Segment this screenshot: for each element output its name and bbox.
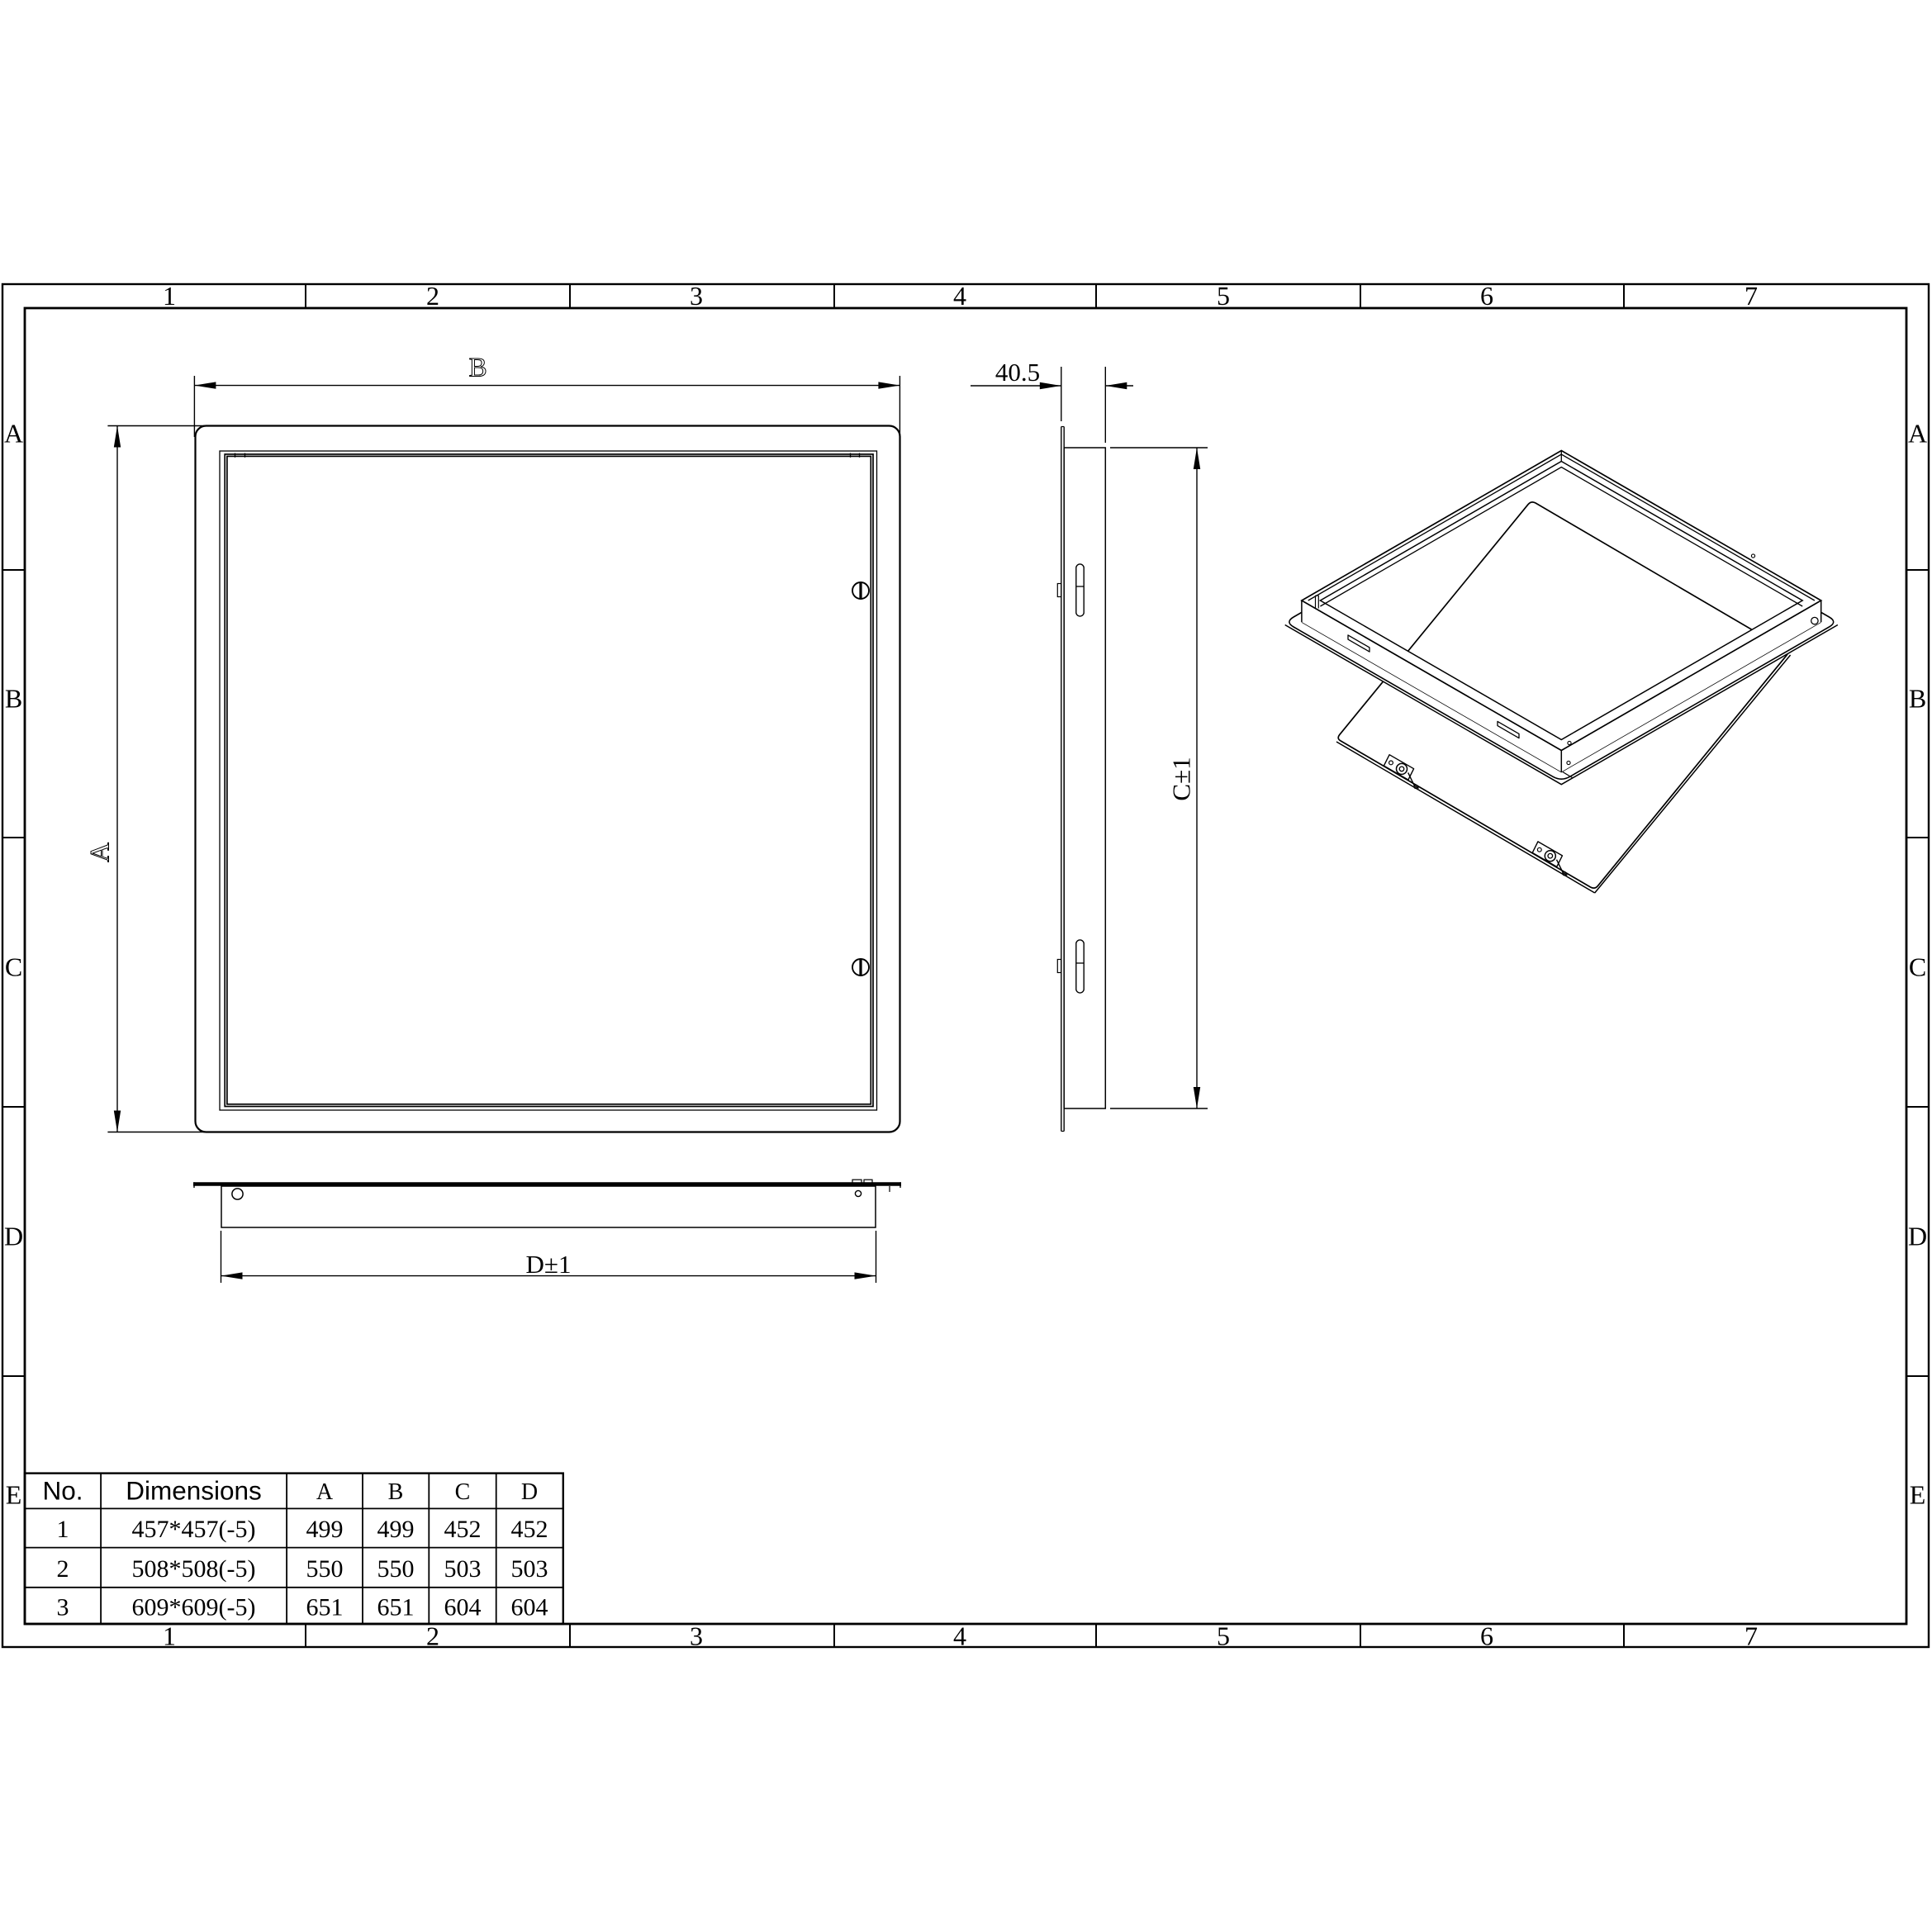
svg-text:No.: No. xyxy=(42,1476,83,1506)
svg-text:503: 503 xyxy=(444,1555,482,1583)
svg-text:609*609(-5): 609*609(-5) xyxy=(132,1594,256,1621)
svg-text:452: 452 xyxy=(511,1516,548,1543)
svg-text:40.5: 40.5 xyxy=(995,358,1040,387)
svg-text:550: 550 xyxy=(377,1555,415,1583)
svg-text:3: 3 xyxy=(57,1594,69,1621)
svg-text:1: 1 xyxy=(163,281,176,311)
svg-text:499: 499 xyxy=(306,1516,344,1543)
svg-text:D: D xyxy=(4,1222,23,1251)
svg-text:452: 452 xyxy=(444,1516,482,1543)
svg-text:651: 651 xyxy=(377,1594,415,1621)
svg-text:B: B xyxy=(469,354,487,383)
svg-text:5: 5 xyxy=(1217,281,1230,311)
svg-text:5: 5 xyxy=(1217,1621,1230,1651)
svg-text:B: B xyxy=(5,684,22,714)
svg-text:E: E xyxy=(1910,1480,1926,1510)
svg-text:2: 2 xyxy=(57,1555,69,1583)
svg-text:508*508(-5): 508*508(-5) xyxy=(132,1555,256,1583)
svg-text:E: E xyxy=(6,1480,22,1510)
svg-text:D±1: D±1 xyxy=(526,1250,572,1279)
svg-text:503: 503 xyxy=(511,1555,548,1583)
svg-text:7: 7 xyxy=(1744,281,1758,311)
svg-text:D: D xyxy=(1908,1222,1927,1251)
svg-text:2: 2 xyxy=(426,281,439,311)
svg-text:499: 499 xyxy=(377,1516,415,1543)
svg-text:B: B xyxy=(1909,684,1926,714)
svg-text:604: 604 xyxy=(444,1594,482,1621)
svg-text:651: 651 xyxy=(306,1594,344,1621)
svg-text:A: A xyxy=(316,1479,334,1505)
svg-text:A: A xyxy=(86,843,116,862)
svg-text:457*457(-5): 457*457(-5) xyxy=(132,1516,256,1543)
svg-text:550: 550 xyxy=(306,1555,344,1583)
svg-text:A: A xyxy=(1908,419,1927,449)
svg-text:D: D xyxy=(521,1479,538,1505)
svg-text:C: C xyxy=(455,1479,471,1505)
svg-text:C: C xyxy=(5,952,22,982)
svg-text:1: 1 xyxy=(163,1621,176,1651)
svg-text:4: 4 xyxy=(953,1621,966,1651)
svg-text:2: 2 xyxy=(426,1621,439,1651)
svg-text:3: 3 xyxy=(690,281,703,311)
svg-text:604: 604 xyxy=(511,1594,548,1621)
svg-text:1: 1 xyxy=(57,1516,69,1543)
svg-text:A: A xyxy=(4,419,23,449)
svg-text:6: 6 xyxy=(1480,1621,1493,1651)
svg-text:C±1: C±1 xyxy=(1167,757,1196,800)
svg-text:B: B xyxy=(388,1479,404,1505)
svg-text:Dimensions: Dimensions xyxy=(126,1476,262,1506)
svg-text:3: 3 xyxy=(690,1621,703,1651)
svg-text:7: 7 xyxy=(1744,1621,1758,1651)
svg-text:C: C xyxy=(1909,952,1926,982)
svg-text:4: 4 xyxy=(953,281,966,311)
svg-text:6: 6 xyxy=(1480,281,1493,311)
